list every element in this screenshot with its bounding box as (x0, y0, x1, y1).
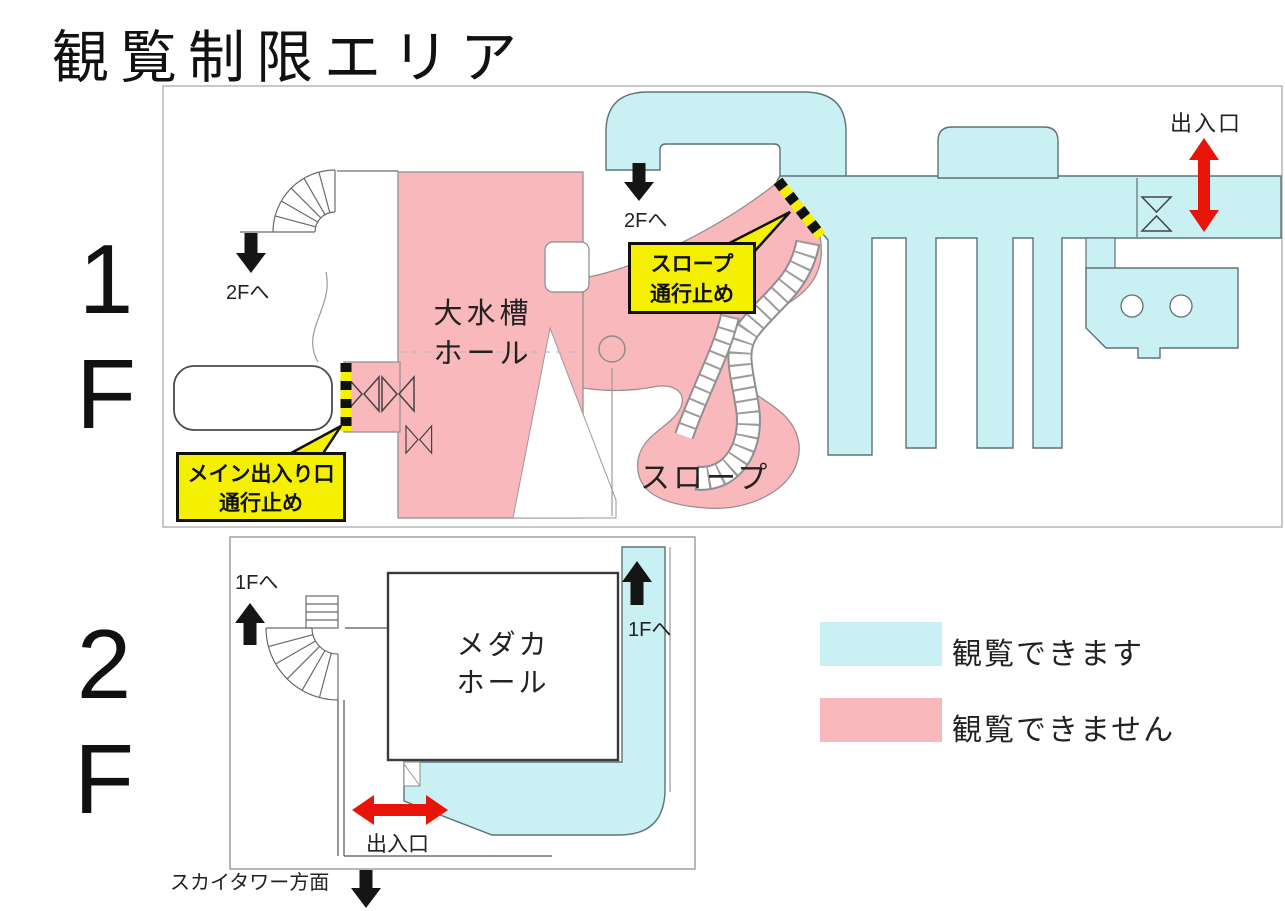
floor2-letter: F (58, 722, 150, 837)
big-tank-hall-line1: 大水槽 (418, 294, 548, 334)
slope-label: スロープ (640, 453, 770, 497)
floor1-left-room-outline (174, 366, 332, 430)
floor1-hall-notch (545, 242, 589, 292)
table-circle-icon (1121, 295, 1143, 317)
to-2f-label-stairs: 2Fへ (226, 276, 269, 305)
medaka-hall-line2: ホール (443, 664, 563, 702)
floor1-top-alcove (938, 127, 1058, 178)
exit-label-2f: 出入口 (366, 828, 429, 858)
legend-swatch-viewable (820, 622, 942, 666)
legend-restricted-label: 観覧できません (952, 705, 1175, 749)
up-arrow-icon-2f-stairs (235, 603, 265, 645)
spiral-staircase-icon (273, 170, 335, 232)
table-circle-icon (1170, 295, 1192, 317)
floor2-label: 2 F (58, 607, 150, 837)
legend-viewable-label: 観覧できます (952, 629, 1144, 673)
floor1-pillar-circle (599, 336, 625, 362)
main-entrance-closed-callout: メイン出入り口 通行止め (176, 452, 346, 522)
to-1f-label-corridor: 1Fへ (628, 613, 671, 642)
spiral-staircase-icon-2f (266, 596, 338, 700)
slope-closed-callout: スロープ 通行止め (628, 242, 756, 314)
down-arrow-icon-1f-stairs (236, 233, 266, 273)
to-2f-label-ramp: 2Fへ (624, 204, 667, 233)
big-tank-hall-line2: ホール (418, 334, 548, 374)
main-entrance-closed-line2: 通行止め (179, 489, 343, 518)
to-1f-label-stairs: 1Fへ (235, 566, 278, 595)
floor1-label: 1 F (60, 222, 152, 452)
slope-closed-line2: 通行止め (631, 280, 753, 310)
down-arrow-icon-skytower (351, 870, 381, 908)
medaka-hall-label: メダカ ホール (443, 626, 563, 702)
big-tank-hall-label: 大水槽 ホール (418, 294, 548, 374)
floor1-number: 1 (60, 222, 152, 337)
floor1-letter: F (60, 337, 152, 452)
exit-label-1f: 出入口 (1170, 106, 1242, 138)
restricted-area-poster: 観覧制限エリア 1 F 2 F 2Fへ 2Fへ 出入口 大水槽 ホール スロープ… (0, 0, 1285, 911)
floor1-main-entrance-corridor-area (344, 362, 400, 432)
page-title: 観覧制限エリア (52, 12, 528, 94)
skytower-direction-label: スカイタワー方面 (170, 866, 329, 895)
legend-swatch-restricted (820, 698, 942, 742)
slope-closed-line1: スロープ (631, 250, 753, 280)
floor1-right-room (1086, 268, 1238, 358)
main-entrance-closed-line1: メイン出入り口 (179, 460, 343, 489)
medaka-hall-line1: メダカ (443, 626, 563, 664)
floor2-number: 2 (58, 607, 150, 722)
